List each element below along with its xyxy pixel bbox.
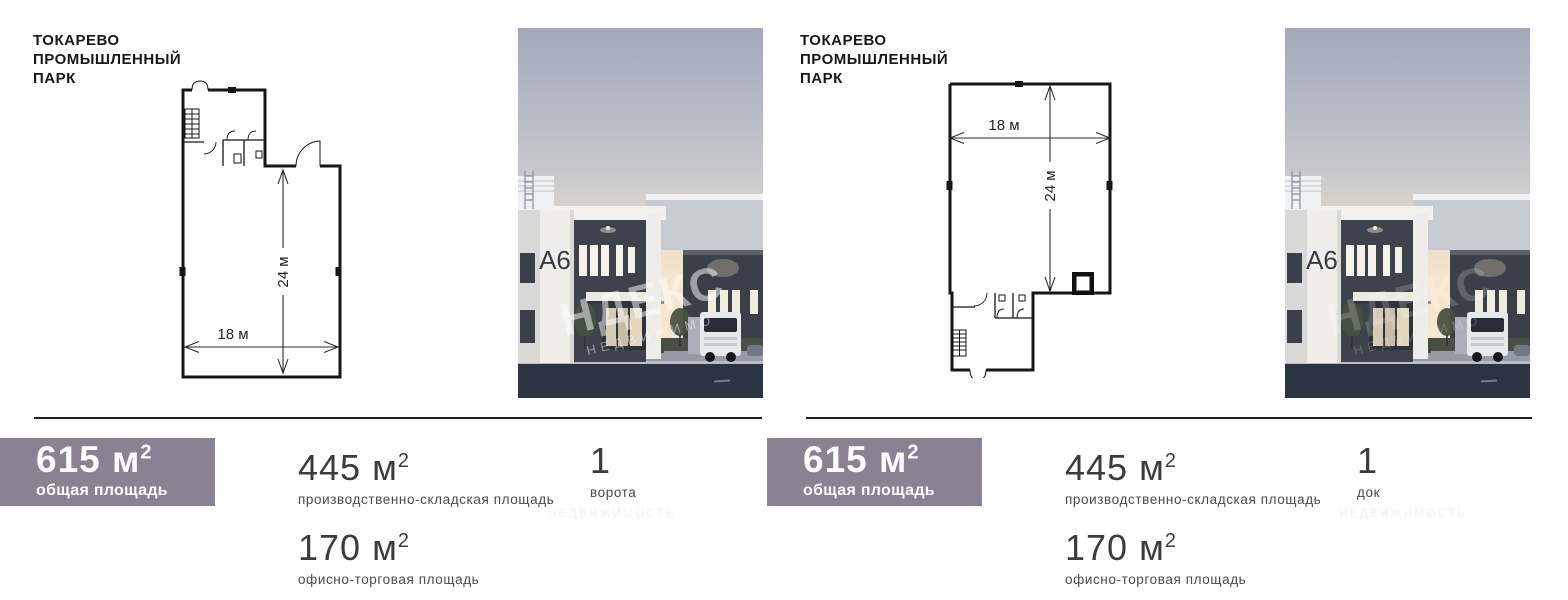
car [1514, 345, 1530, 356]
outer-walls [950, 84, 1110, 370]
office-area-label: офисно-торговая площадь [298, 572, 479, 587]
floor-plan: 24 м 18 м [178, 78, 343, 383]
docks-stat: 1 док [1357, 442, 1380, 500]
docks-value: 1 [1357, 442, 1380, 480]
width-dimension-label: 18 м [217, 326, 248, 343]
park-title-line: ПРОМЫШЛЕННЫЙ [800, 50, 948, 69]
interior-door-arcs [204, 131, 256, 154]
entry-door-arcs [970, 370, 986, 378]
height-dimension-label: 24 м [1042, 170, 1059, 201]
office-area-stat: 170 м2 офисно-торговая площадь [1065, 522, 1246, 587]
faint-watermark: НЕДВИЖИМОСТЬ [548, 506, 676, 520]
faint-watermark: НЕДВИЖИМОСТЬ [1339, 506, 1467, 520]
building-label: A6 [1306, 245, 1338, 275]
office-area-value: 170 м2 [1065, 522, 1246, 567]
entry-door-arcs [192, 81, 208, 90]
height-dimension-label: 24 м [275, 256, 292, 287]
park-title-line: ПАРК [800, 69, 948, 88]
width-dimension-label: 18 м [988, 117, 1019, 134]
total-area-value: 615 м2 [803, 439, 920, 481]
brochure-page: ТОКАРЕВО ПРОМЫШЛЕННЫЙ ПАРК [0, 0, 1568, 600]
park-title-line: ТОКАРЕВО [33, 31, 181, 50]
office-partitions [952, 293, 1033, 318]
park-title: ТОКАРЕВО ПРОМЫШЛЕННЫЙ ПАРК [33, 31, 181, 88]
divider-line [34, 417, 762, 419]
dimension-arrows [950, 86, 1110, 291]
wall-ticks [947, 81, 1113, 190]
total-area-label: общая площадь [803, 482, 935, 500]
outer-walls [183, 90, 340, 377]
total-area-label: общая площадь [36, 482, 168, 500]
wc-fixture [256, 151, 262, 158]
unit-panel-right: ТОКАРЕВО ПРОМЫШЛЕННЫЙ ПАРК [767, 0, 1551, 600]
office-partitions [183, 140, 265, 166]
warehouse-area-label: производственно-складская площадь [298, 492, 554, 507]
park-title-line: ПАРК [33, 69, 181, 88]
wc-fixture [999, 295, 1005, 301]
office-area-stat: 170 м2 офисно-торговая площадь [298, 522, 479, 587]
park-title-line: ТОКАРЕВО [800, 31, 948, 50]
dimension-arrows [185, 170, 338, 373]
divider-line [806, 417, 1532, 419]
stairs-icon [953, 330, 966, 356]
total-area-box: 615 м2 общая площадь [0, 438, 215, 506]
floor-plan: 24 м 18 м [945, 78, 1120, 378]
unit-panel-left: ТОКАРЕВО ПРОМЫШЛЕННЫЙ ПАРК [0, 0, 784, 600]
wall-ticks [180, 87, 342, 276]
wc-fixture [234, 154, 241, 163]
total-area-value: 615 м2 [36, 439, 153, 481]
park-title: ТОКАРЕВО ПРОМЫШЛЕННЫЙ ПАРК [800, 31, 948, 88]
docks-label: док [1357, 485, 1380, 500]
warehouse-area-value: 445 м2 [1065, 442, 1321, 487]
building-photo: A6 НДЕКС НЕДВИЖИМО [1285, 28, 1530, 398]
stairs-icon [185, 109, 199, 138]
building-label: A6 [539, 245, 571, 275]
gates-value: 1 [590, 442, 636, 480]
building-photo: A6 НДЕКС НЕДВИЖИМО [518, 28, 763, 398]
warehouse-area-stat: 445 м2 производственно-складская площадь [298, 442, 554, 507]
warehouse-area-label: производственно-складская площадь [1065, 492, 1321, 507]
gates-label: ворота [590, 485, 636, 500]
wc-fixture [1019, 295, 1025, 301]
car [747, 345, 763, 356]
warehouse-area-stat: 445 м2 производственно-складская площадь [1065, 442, 1321, 507]
gates-stat: 1 ворота [590, 442, 636, 500]
park-title-line: ПРОМЫШЛЕННЫЙ [33, 50, 181, 69]
office-area-label: офисно-торговая площадь [1065, 572, 1246, 587]
hall-door-arc [296, 141, 320, 166]
warehouse-area-value: 445 м2 [298, 442, 554, 487]
total-area-box: 615 м2 общая площадь [767, 438, 982, 506]
office-area-value: 170 м2 [298, 522, 479, 567]
